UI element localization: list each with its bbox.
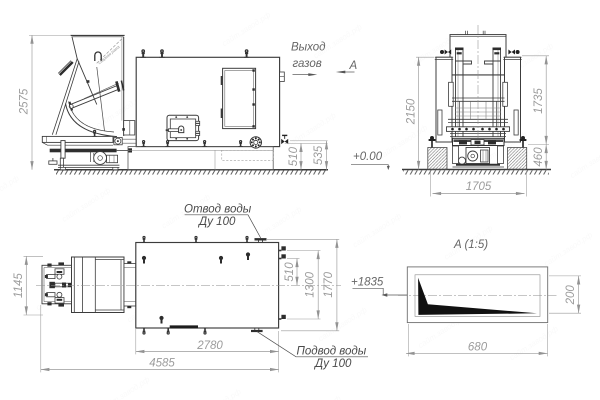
svg-text:4585: 4585 xyxy=(149,357,175,369)
svg-text:Ду 100: Ду 100 xyxy=(197,216,236,228)
svg-text:510: 510 xyxy=(284,262,296,282)
svg-text:A: A xyxy=(349,60,358,72)
svg-text:Ду 100: Ду 100 xyxy=(313,358,352,370)
svg-text:газов: газов xyxy=(293,58,322,70)
svg-text:+0.00: +0.00 xyxy=(353,151,383,163)
svg-text:200: 200 xyxy=(565,285,577,306)
svg-text:2575: 2575 xyxy=(19,88,31,115)
svg-text:510: 510 xyxy=(288,146,300,166)
svg-text:2780: 2780 xyxy=(196,340,223,352)
svg-text:680: 680 xyxy=(468,342,488,354)
svg-text:1705: 1705 xyxy=(466,181,492,193)
svg-text:2150: 2150 xyxy=(405,98,417,125)
svg-text:A (1:5): A (1:5) xyxy=(453,239,488,251)
svg-text:Выход: Выход xyxy=(291,42,326,54)
svg-text:1300: 1300 xyxy=(304,271,316,297)
svg-text:460: 460 xyxy=(533,147,545,167)
svg-text:1735: 1735 xyxy=(533,88,545,114)
svg-text:Подвод воды: Подвод воды xyxy=(297,346,367,358)
svg-text:535: 535 xyxy=(313,145,325,165)
svg-text:1145: 1145 xyxy=(13,273,25,298)
svg-text:Отвод воды: Отвод воды xyxy=(184,204,252,216)
svg-text:1770: 1770 xyxy=(323,271,335,297)
svg-text:+1835: +1835 xyxy=(351,277,384,289)
